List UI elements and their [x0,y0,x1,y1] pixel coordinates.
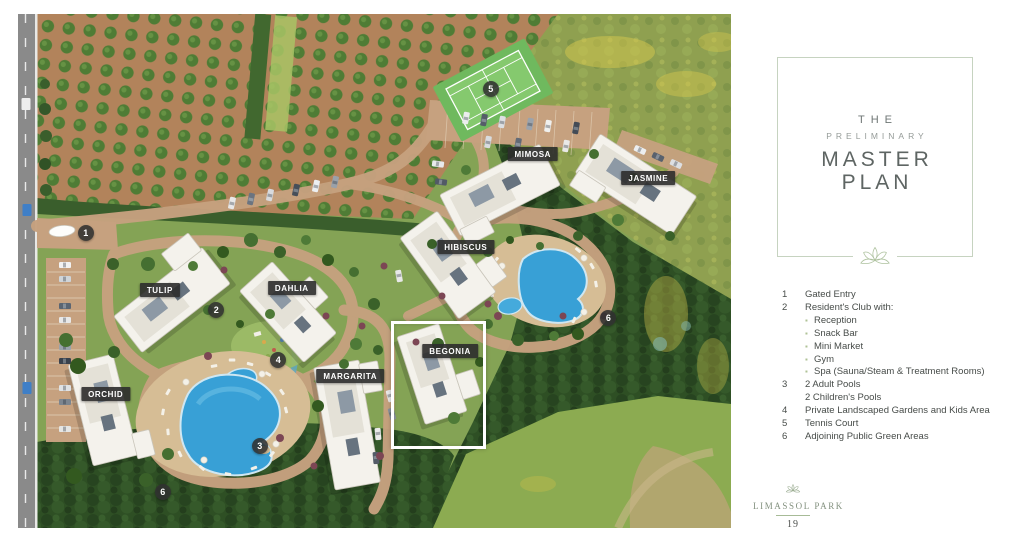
building-label-hibiscus: HIBISCUS [437,240,494,254]
building-label-orchid: ORCHID [81,387,130,401]
map-marker-6: 6 [155,484,171,500]
map-marker-3: 3 [252,438,268,454]
building-label-jasmine: JASMINE [621,171,675,185]
legend-bullet-item: ▪Spa (Sauna/Steam & Treatment Rooms) [782,366,1014,379]
building-label-tulip: TULIP [140,283,180,297]
map-marker-6: 6 [600,310,616,326]
building-label-begonia: BEGONIA [422,344,478,358]
map-illustration [18,14,731,528]
brand-leaf-icon [785,481,801,498]
title-subtitle: PRELIMINARY [778,131,972,141]
legend-item: 2 Children's Pools [782,392,1014,405]
site-map: TULIPDAHLIAORCHIDMARGARITABEGONIAHIBISCU… [18,14,731,528]
legend-item: 4Private Landscaped Gardens and Kids Are… [782,405,1014,418]
begonia-highlight-box [391,321,486,449]
brand-name: LIMASSOL PARK [753,501,833,511]
legend-item: 1Gated Entry [782,289,1014,302]
legend-bullet-item: ▪Reception [782,315,1014,328]
legend-bullet-item: ▪Mini Market [782,341,1014,354]
map-marker-5: 5 [483,81,499,97]
legend-list: 1Gated Entry2Resident's Club with:▪Recep… [782,289,1014,444]
legend-bullet-item: ▪Gym [782,354,1014,367]
map-marker-1: 1 [78,225,94,241]
title-eyebrow: THE [778,114,972,126]
title-line2: PLAN [778,171,972,194]
map-marker-2: 2 [208,302,224,318]
map-marker-4: 4 [270,352,286,368]
footer-rule [776,515,810,516]
leaf-ornament-icon [853,245,897,267]
building-label-mimosa: MIMOSA [508,147,559,161]
building-label-dahlia: DAHLIA [268,281,316,295]
legend-item: 2Resident's Club with: [782,302,1014,315]
legend-item: 32 Adult Pools [782,379,1014,392]
title-line1: MASTER [778,148,972,171]
master-plan-title-box: THE PRELIMINARY MASTER PLAN [777,57,973,257]
legend-item: 6Adjoining Public Green Areas [782,431,1014,444]
page-number: 19 [753,519,833,530]
brochure-page: TULIPDAHLIAORCHIDMARGARITABEGONIAHIBISCU… [0,0,1024,549]
info-panel: THE PRELIMINARY MASTER PLAN 1Gated Entry… [740,0,1024,549]
legend-bullet-item: ▪Snack Bar [782,328,1014,341]
legend-item: 5Tennis Court [782,418,1014,431]
building-label-margarita: MARGARITA [316,369,384,383]
brand-footer: LIMASSOL PARK 19 [753,481,833,530]
